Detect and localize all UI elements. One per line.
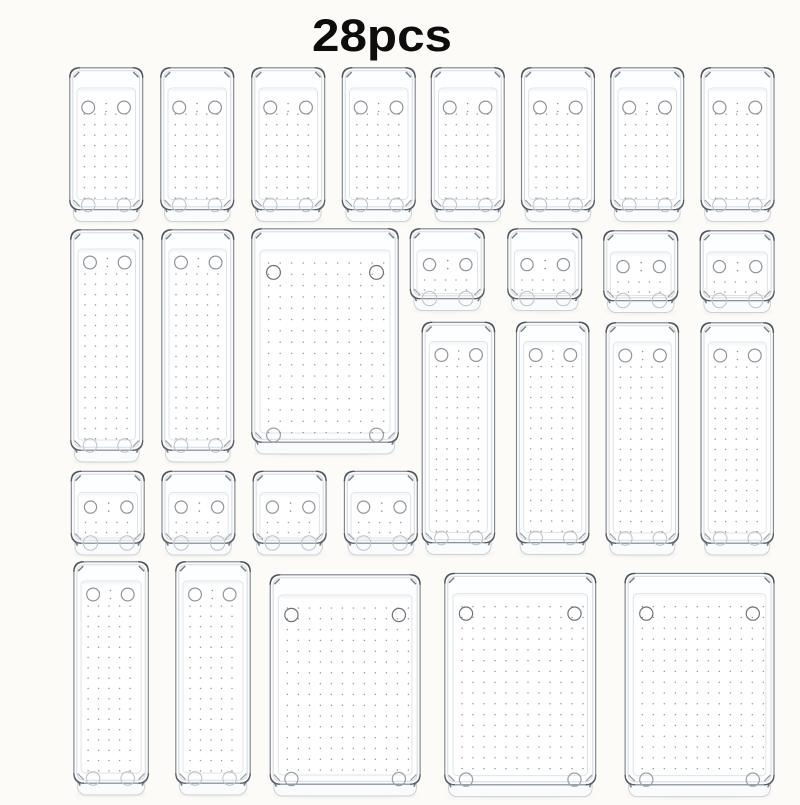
- svg-text:28pcs: 28pcs: [312, 10, 452, 61]
